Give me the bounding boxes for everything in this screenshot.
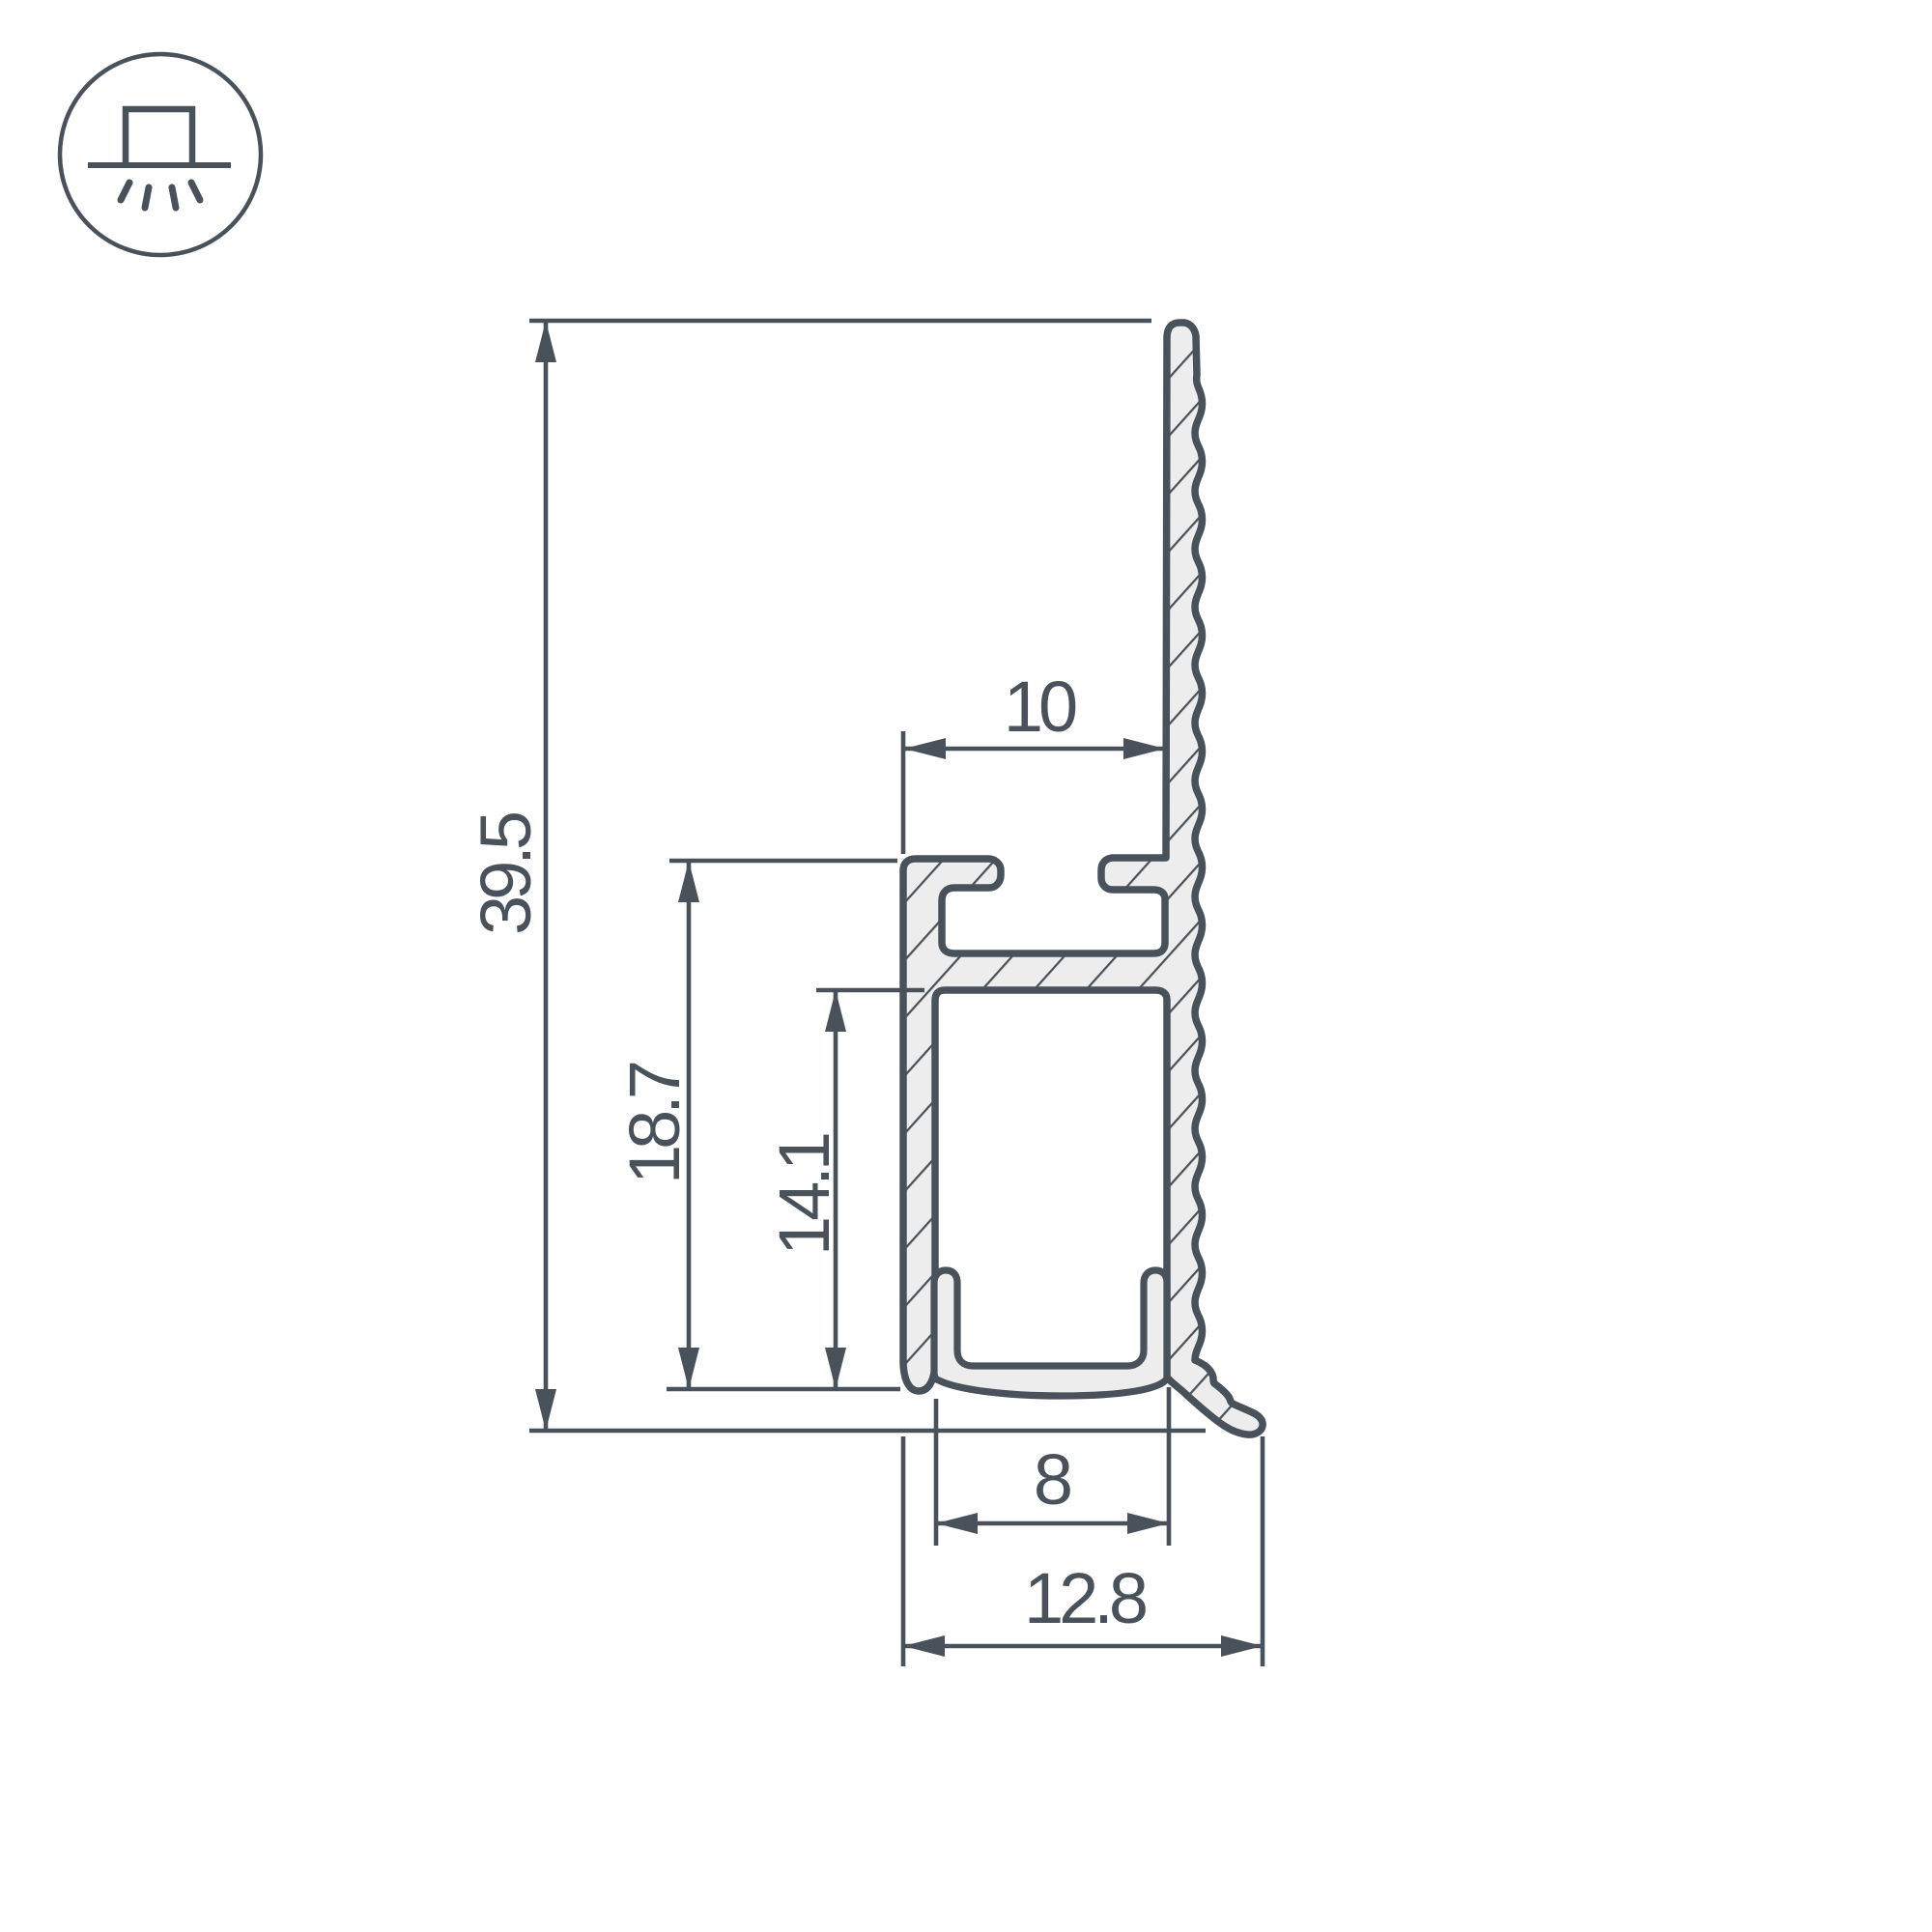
svg-text:14.1: 14.1 bbox=[764, 1134, 844, 1256]
svg-text:18.7: 18.7 bbox=[614, 1063, 695, 1184]
svg-text:12.8: 12.8 bbox=[1024, 1558, 1146, 1638]
svg-text:39.5: 39.5 bbox=[466, 812, 546, 935]
svg-text:8: 8 bbox=[1034, 1439, 1070, 1520]
svg-text:10: 10 bbox=[1004, 667, 1076, 747]
